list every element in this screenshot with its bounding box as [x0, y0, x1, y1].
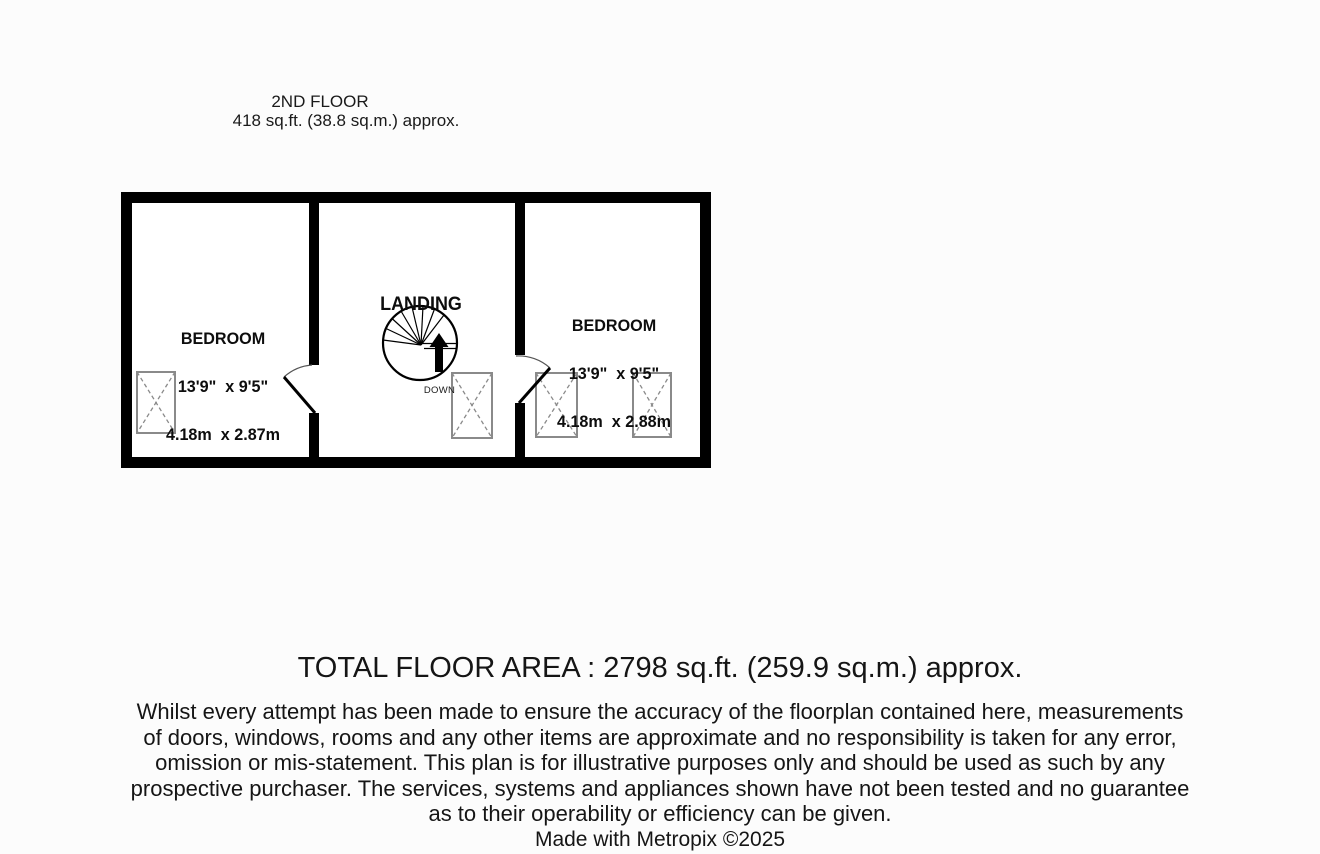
room-dim-imperial: 13'9" x 9'5" [557, 366, 671, 382]
room-dim-metric: 4.18m x 2.88m [557, 414, 671, 430]
total-floor-area: TOTAL FLOOR AREA : 2798 sq.ft. (259.9 sq… [0, 652, 1320, 685]
window-box-landing [452, 373, 492, 438]
floor-title: 2ND FLOOR [271, 92, 368, 112]
room-dim-imperial: 13'9" x 9'5" [166, 379, 280, 395]
room-label-left-bedroom: BEDROOM 13'9" x 9'5" 4.18m x 2.87m [166, 299, 280, 475]
floor-area-subtitle: 418 sq.ft. (38.8 sq.m.) approx. [233, 111, 460, 131]
disclaimer-line: as to their operability or efficiency ca… [0, 801, 1320, 827]
room-name: LANDING [380, 296, 462, 312]
stairs-down-label: DOWN [424, 385, 455, 396]
disclaimer: Whilst every attempt has been made to en… [0, 699, 1320, 827]
floorplan-page: 2ND FLOOR 418 sq.ft. (38.8 sq.m.) approx… [0, 0, 1320, 854]
room-name: BEDROOM [166, 331, 280, 347]
disclaimer-line: omission or mis-statement. This plan is … [0, 750, 1320, 776]
room-label-right-bedroom: BEDROOM 13'9" x 9'5" 4.18m x 2.88m [557, 286, 671, 462]
disclaimer-line: prospective purchaser. The services, sys… [0, 776, 1320, 802]
room-dim-metric: 4.18m x 2.87m [166, 427, 280, 443]
disclaimer-line: of doors, windows, rooms and any other i… [0, 725, 1320, 751]
room-label-landing: LANDING [380, 264, 462, 344]
metropix-credit: Made with Metropix ©2025 [0, 828, 1320, 852]
room-name: BEDROOM [557, 318, 671, 334]
disclaimer-line: Whilst every attempt has been made to en… [0, 699, 1320, 725]
